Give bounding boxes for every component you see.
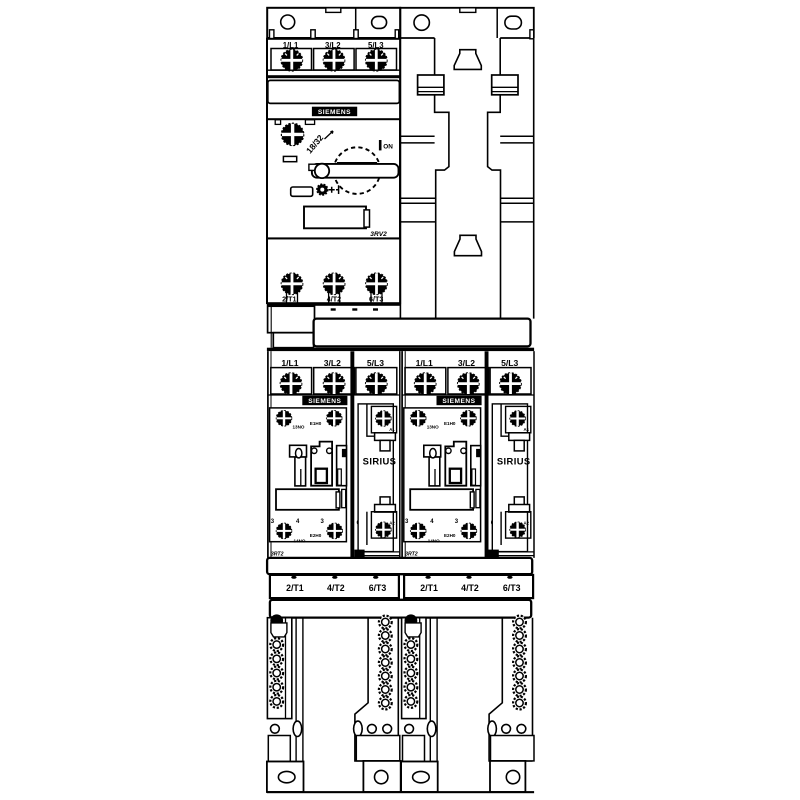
svg-text:14NO: 14NO (294, 538, 306, 543)
svg-text:13NO: 13NO (293, 425, 305, 430)
svg-text:3RV2: 3RV2 (370, 231, 387, 238)
svg-text:4/T2: 4/T2 (327, 583, 345, 593)
svg-text:4/T2: 4/T2 (327, 294, 341, 303)
svg-text:SIRIUS: SIRIUS (363, 456, 397, 467)
svg-text:6/T3: 6/T3 (369, 583, 387, 593)
svg-text:SIEMENS: SIEMENS (308, 398, 341, 405)
svg-text:2/T1: 2/T1 (282, 294, 296, 303)
svg-text:E2H0: E2H0 (310, 533, 322, 538)
svg-text:3/L2: 3/L2 (324, 358, 341, 368)
svg-text:6/T3: 6/T3 (369, 294, 383, 303)
svg-text:A1: A1 (389, 427, 395, 432)
svg-text:2/T1: 2/T1 (286, 583, 304, 593)
svg-text:E1H0: E1H0 (310, 421, 322, 426)
svg-text:5/L3: 5/L3 (367, 358, 384, 368)
svg-text:3RT2: 3RT2 (271, 552, 284, 558)
svg-text:1/L1: 1/L1 (281, 358, 298, 368)
svg-text:ON: ON (383, 143, 393, 150)
svg-text:SIEMENS: SIEMENS (318, 109, 351, 116)
svg-text:A2: A2 (389, 521, 395, 526)
